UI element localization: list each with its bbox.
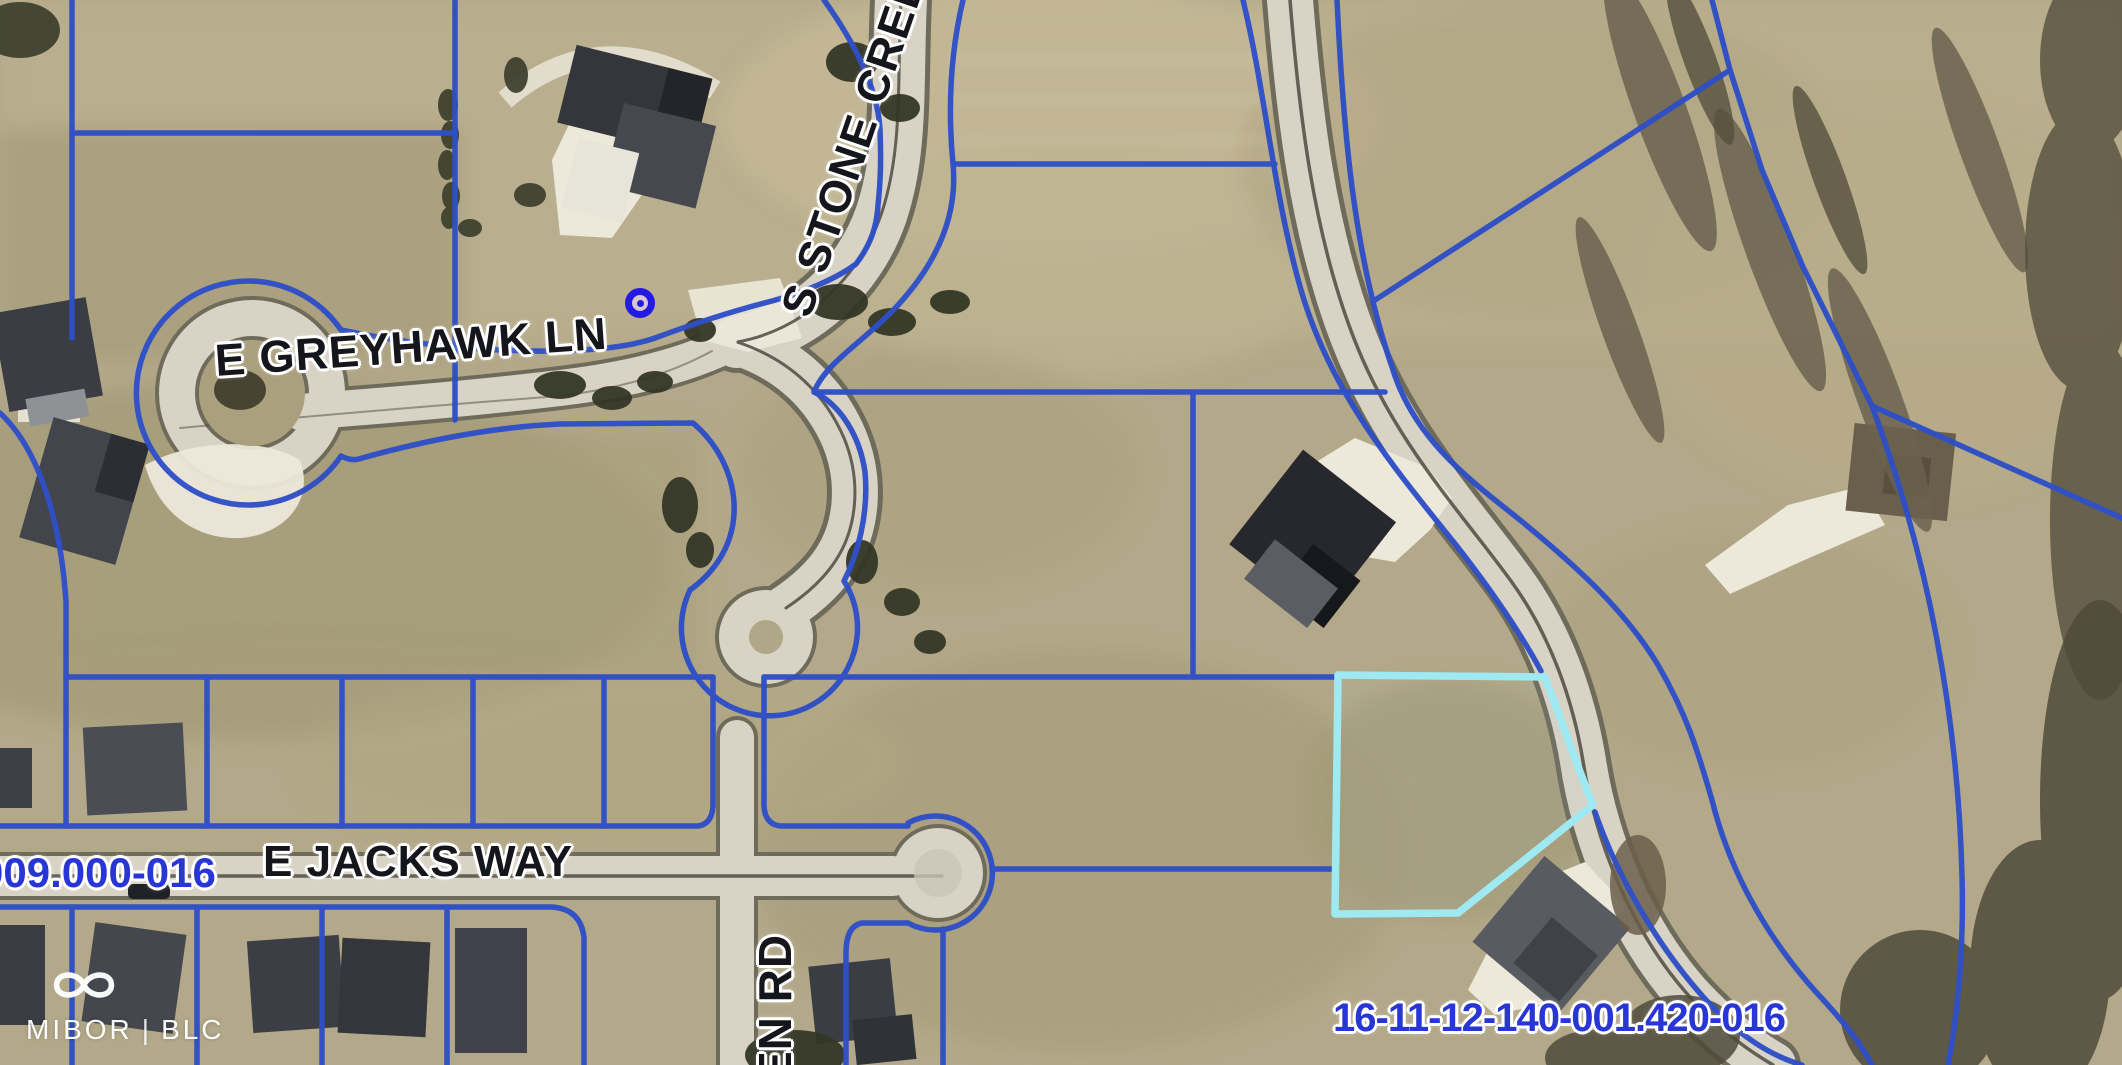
watermark-separator: | xyxy=(142,1014,152,1046)
map-canvas xyxy=(0,0,2122,1065)
street-label-ren-rd: EN RD xyxy=(752,934,798,1065)
parcel-number-left: 009.000-016 xyxy=(0,852,216,894)
location-marker-ring xyxy=(632,295,648,311)
parcel-number-highlighted: 16-11-12-140-001.420-016 xyxy=(1333,998,1785,1038)
mibor-blc-watermark: MIBOR | BLC xyxy=(26,958,225,1046)
aerial-parcel-map[interactable]: E GREYHAWK LN S STONE CREE E JACKS WAY E… xyxy=(0,0,2122,1065)
street-label-jacks-way: E JACKS WAY xyxy=(263,840,573,884)
location-marker-icon[interactable] xyxy=(625,288,655,318)
watermark-text: MIBOR | BLC xyxy=(26,1014,225,1046)
watermark-suffix: BLC xyxy=(161,1014,224,1046)
infinity-logo-icon xyxy=(32,958,136,1012)
watermark-brand: MIBOR xyxy=(26,1014,133,1046)
location-marker-dot xyxy=(637,300,644,307)
